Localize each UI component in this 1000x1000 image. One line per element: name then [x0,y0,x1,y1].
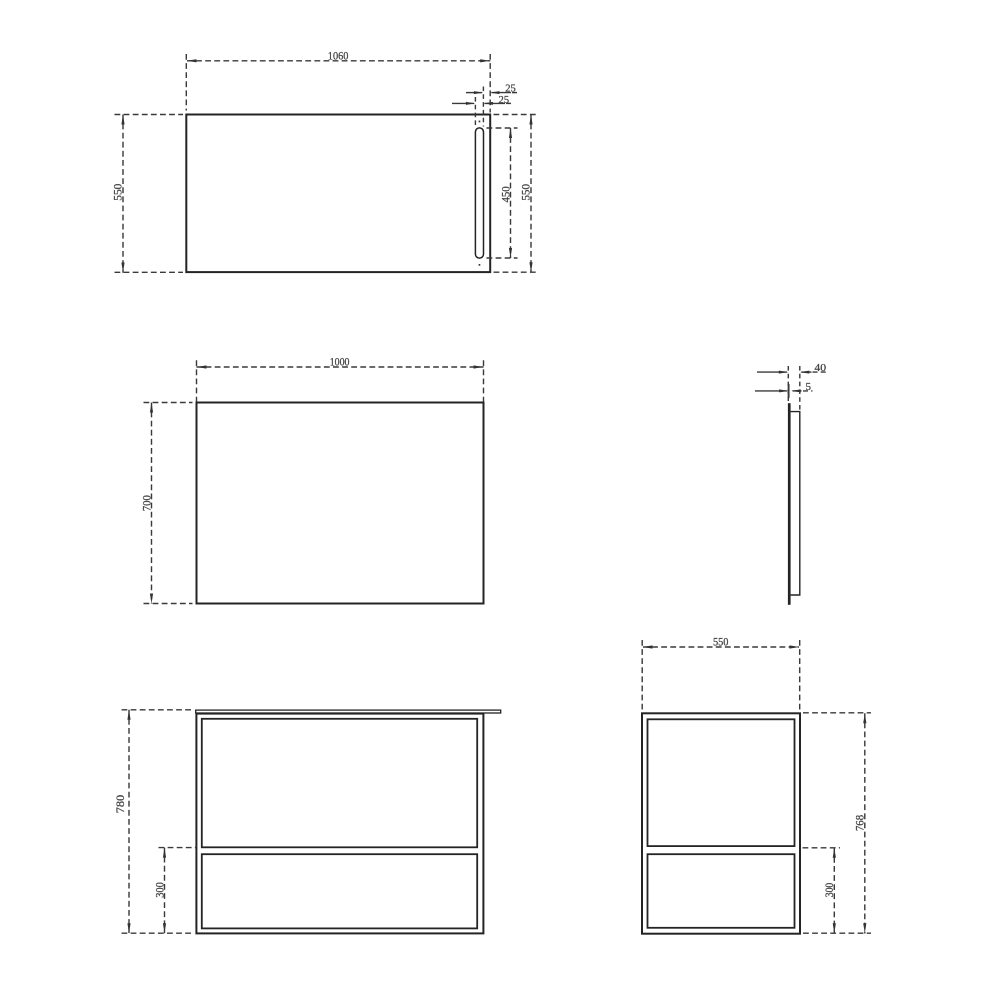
svg-text:25: 25 [505,83,516,95]
svg-text:1060: 1060 [328,50,349,62]
svg-text:768: 768 [855,815,867,831]
svg-text:450: 450 [500,186,512,202]
svg-text:700: 700 [142,495,154,511]
svg-text:780: 780 [115,795,127,814]
svg-text:5: 5 [805,381,811,393]
svg-text:550: 550 [113,183,125,200]
svg-text:40: 40 [814,362,826,374]
svg-text:1000: 1000 [330,356,350,368]
svg-text:550: 550 [713,637,729,649]
svg-text:550: 550 [520,184,532,201]
svg-text:300: 300 [824,882,836,897]
svg-text:25: 25 [499,94,510,106]
svg-text:300: 300 [154,882,166,898]
